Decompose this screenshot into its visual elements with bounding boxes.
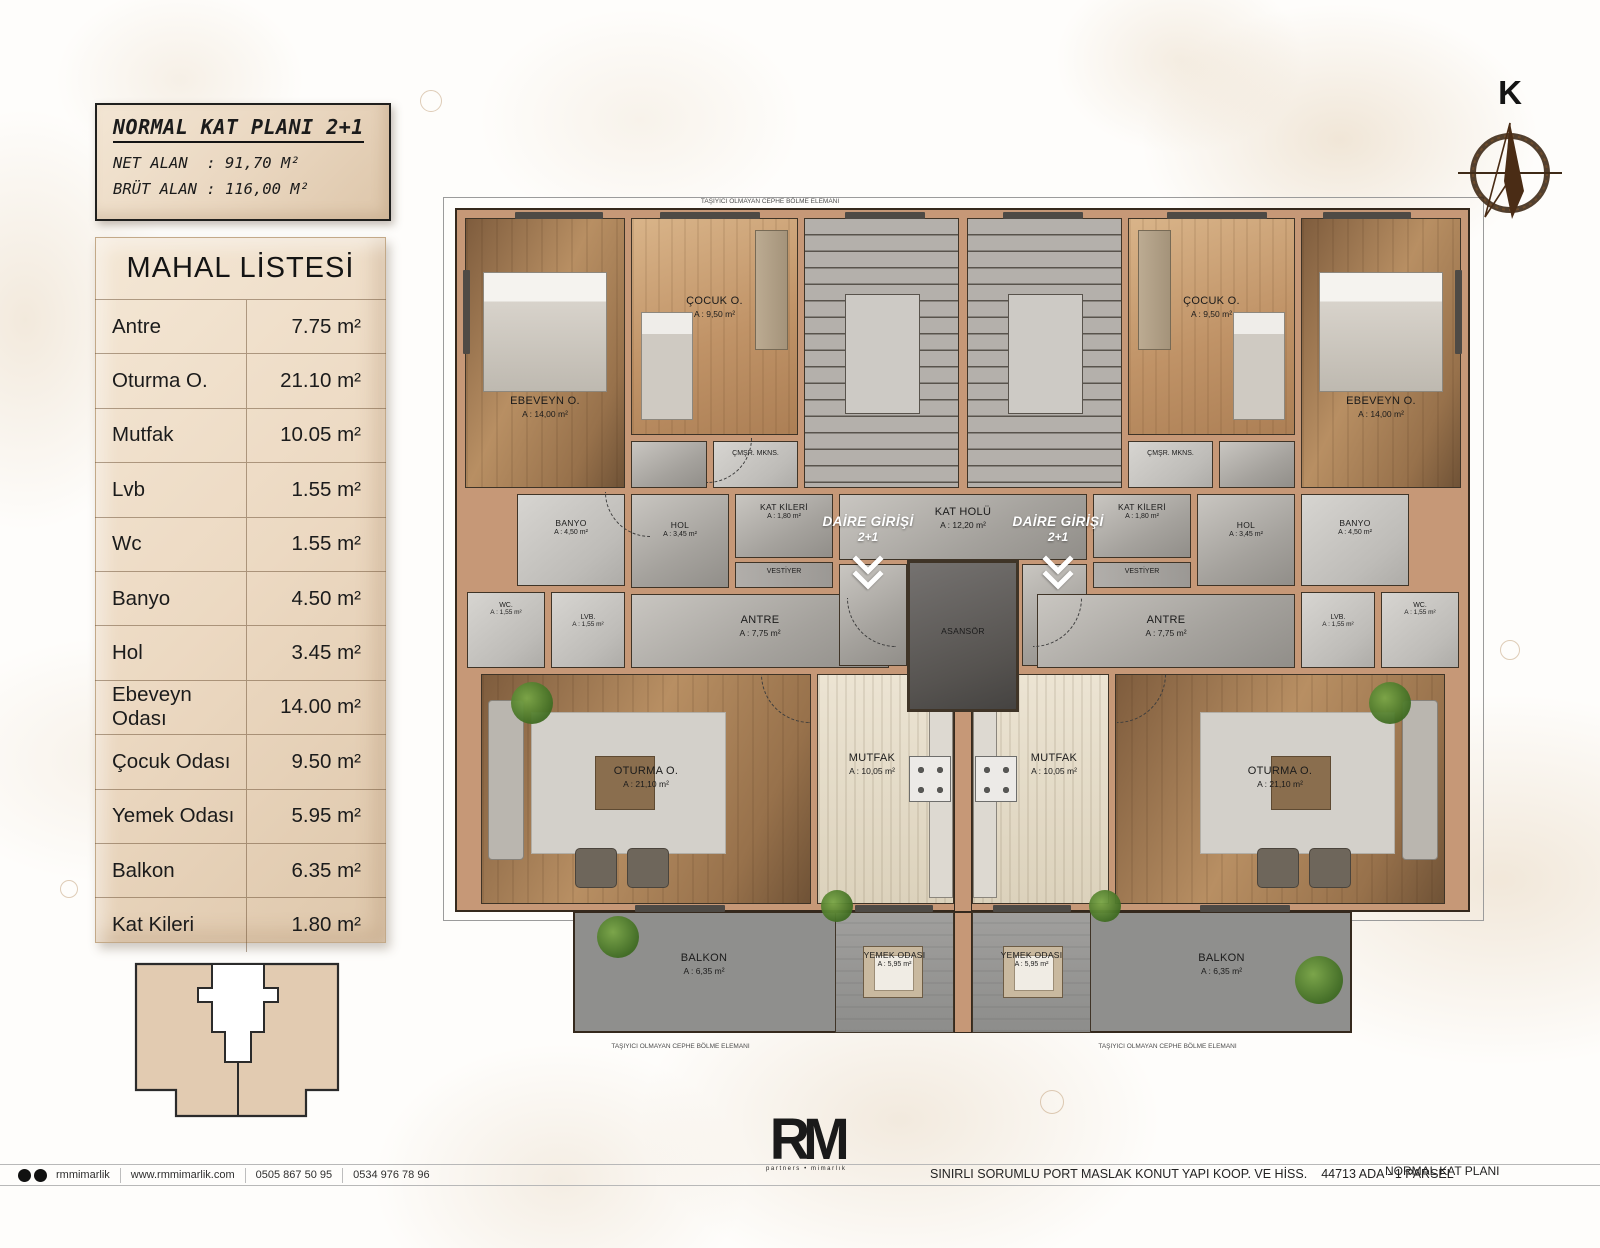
row-area: 5.95 m² <box>247 804 386 828</box>
facade-note-top: TAŞIYICI OLMAYAN CEPHE BÖLME ELEMANI <box>605 198 935 206</box>
room-laundry-right <box>1128 441 1213 488</box>
room-list-title: MAHAL LİSTESİ <box>95 237 386 299</box>
window <box>515 212 603 219</box>
rm-logo: RM partners • mimarlık <box>766 1112 847 1172</box>
footer-bottom-line <box>0 1185 1600 1186</box>
facade-note-bottom-left: TAŞIYICI OLMAYAN CEPHE BÖLME ELEMANI <box>603 1043 758 1051</box>
plant <box>1089 890 1121 922</box>
row-name: Oturma O. <box>95 354 247 407</box>
gross-area-line: BRÜT ALAN : 116,00 M² <box>113 177 375 203</box>
brand-name: rmmimarlik <box>56 1169 110 1181</box>
stairwell-left <box>804 218 959 488</box>
table-row: Yemek Odası5.95 m² <box>95 789 386 843</box>
row-name: Wc <box>95 518 247 571</box>
divider <box>120 1168 121 1183</box>
entry-label-left: DAİRE GİRİŞİ 2+1 <box>805 514 931 585</box>
room-wc-left <box>467 592 545 668</box>
social-icon <box>34 1169 47 1182</box>
row-area: 21.10 m² <box>247 369 386 393</box>
row-name: Çocuk Odası <box>95 735 247 788</box>
divider <box>342 1168 343 1183</box>
window <box>1167 212 1267 219</box>
row-name: Mutfak <box>95 409 247 462</box>
room-wc-right <box>1381 592 1459 668</box>
stair-landing <box>845 294 920 414</box>
window <box>660 212 760 219</box>
social-icon <box>18 1169 31 1182</box>
table-row: Oturma O.21.10 m² <box>95 353 386 407</box>
droplet-decoration <box>420 90 442 112</box>
child-bed <box>641 312 693 420</box>
row-name: Banyo <box>95 572 247 625</box>
rm-logo-letters: RM <box>766 1111 847 1167</box>
row-area: 4.50 m² <box>247 587 386 611</box>
website-link: www.rmmimarlik.com <box>131 1169 235 1181</box>
stove <box>909 756 951 802</box>
row-name: Antre <box>95 300 247 353</box>
sofa <box>1402 700 1438 860</box>
armchair <box>1257 848 1299 888</box>
window <box>463 270 470 354</box>
window <box>1455 270 1462 354</box>
entry-label-right: DAİRE GİRİŞİ 2+1 <box>995 514 1121 585</box>
armchair <box>627 848 669 888</box>
title-block: NORMAL KAT PLANI 2+1 NET ALAN : 91,70 M²… <box>95 103 391 221</box>
table-row: Ebeveyn Odası14.00 m² <box>95 680 386 734</box>
row-area: 10.05 m² <box>247 423 386 447</box>
balcony-door <box>855 905 933 912</box>
balcony-door <box>635 905 725 912</box>
row-name: Kat Kileri <box>95 898 247 951</box>
dining-table <box>1003 946 1063 998</box>
table-row: Hol3.45 m² <box>95 625 386 679</box>
row-name: Lvb <box>95 463 247 516</box>
row-area: 14.00 m² <box>247 695 386 719</box>
table-row: Banyo4.50 m² <box>95 571 386 625</box>
window <box>845 212 925 219</box>
child-bed <box>1233 312 1285 420</box>
row-area: 7.75 m² <box>247 315 386 339</box>
plant <box>821 890 853 922</box>
room-list-panel: MAHAL LİSTESİ Antre7.75 m² Oturma O.21.1… <box>95 237 386 943</box>
phone-number: 0534 976 78 96 <box>353 1169 429 1181</box>
footer-plan-name: NORMAL KAT PLANI <box>1385 1164 1485 1178</box>
row-area: 3.45 m² <box>247 641 386 665</box>
stove <box>975 756 1017 802</box>
window <box>1323 212 1411 219</box>
balcony-door <box>993 905 1071 912</box>
room-banyo-right <box>1301 494 1409 586</box>
plant <box>1295 956 1343 1004</box>
row-area: 6.35 m² <box>247 859 386 883</box>
bed <box>483 272 607 392</box>
coffee-table <box>1271 756 1331 810</box>
room-lvb-left <box>551 592 625 668</box>
plan-title: NORMAL KAT PLANI 2+1 <box>113 115 364 143</box>
compass-icon <box>1452 111 1568 233</box>
row-area: 1.80 m² <box>247 913 386 937</box>
north-compass: K <box>1452 76 1568 238</box>
table-row: Çocuk Odası9.50 m² <box>95 734 386 788</box>
bed <box>1319 272 1443 392</box>
droplet-decoration <box>60 880 78 898</box>
net-area-line: NET ALAN : 91,70 M² <box>113 151 375 177</box>
stairwell-right <box>967 218 1122 488</box>
table-row: Mutfak10.05 m² <box>95 408 386 462</box>
window <box>1003 212 1083 219</box>
row-name: Yemek Odası <box>95 790 247 843</box>
balcony-door <box>1200 905 1290 912</box>
plant <box>511 682 553 724</box>
droplet-decoration <box>1040 1090 1064 1114</box>
armchair <box>1309 848 1351 888</box>
dining-table <box>863 946 923 998</box>
armchair <box>575 848 617 888</box>
center-wall-balcony <box>954 912 972 1033</box>
row-name: Balkon <box>95 844 247 897</box>
floor-plan: EBEVEYN O. A : 14,00 m² ÇOCUK O. A : 9,5… <box>455 200 1470 1035</box>
wardrobe <box>1138 230 1171 350</box>
key-plan-footprint <box>128 956 346 1136</box>
table-row: Antre7.75 m² <box>95 299 386 353</box>
row-area: 9.50 m² <box>247 750 386 774</box>
coffee-table <box>595 756 655 810</box>
center-wall <box>954 705 972 912</box>
table-row: Wc1.55 m² <box>95 517 386 571</box>
room-lvb-right <box>1301 592 1375 668</box>
divider <box>245 1168 246 1183</box>
plant <box>1369 682 1411 724</box>
stair-landing <box>1008 294 1083 414</box>
row-area: 1.55 m² <box>247 478 386 502</box>
table-row: Lvb1.55 m² <box>95 462 386 516</box>
droplet-decoration <box>1500 640 1520 660</box>
sofa <box>488 700 524 860</box>
room-hol-right <box>1197 494 1295 586</box>
hall-strip-left <box>631 441 707 488</box>
plant <box>597 916 639 958</box>
footer-project-info: SINIRLI SORUMLU PORT MASLAK KONUT YAPI K… <box>930 1167 1300 1181</box>
north-letter: K <box>1452 76 1568 109</box>
row-name: Hol <box>95 626 247 679</box>
wardrobe <box>755 230 788 350</box>
phone-number: 0505 867 50 95 <box>256 1169 332 1181</box>
row-area: 1.55 m² <box>247 532 386 556</box>
row-name: Ebeveyn Odası <box>95 681 247 734</box>
table-row: Balkon6.35 m² <box>95 843 386 897</box>
table-row: Kat Kileri1.80 m² <box>95 897 386 951</box>
hall-strip-right <box>1219 441 1295 488</box>
facade-note-bottom-right: TAŞIYICI OLMAYAN CEPHE BÖLME ELEMANI <box>1090 1043 1245 1051</box>
footer-contact: rmmimarlik www.rmmimarlik.com 0505 867 5… <box>18 1166 430 1184</box>
project-name: SINIRLI SORUMLU PORT MASLAK KONUT YAPI K… <box>930 1167 1307 1181</box>
